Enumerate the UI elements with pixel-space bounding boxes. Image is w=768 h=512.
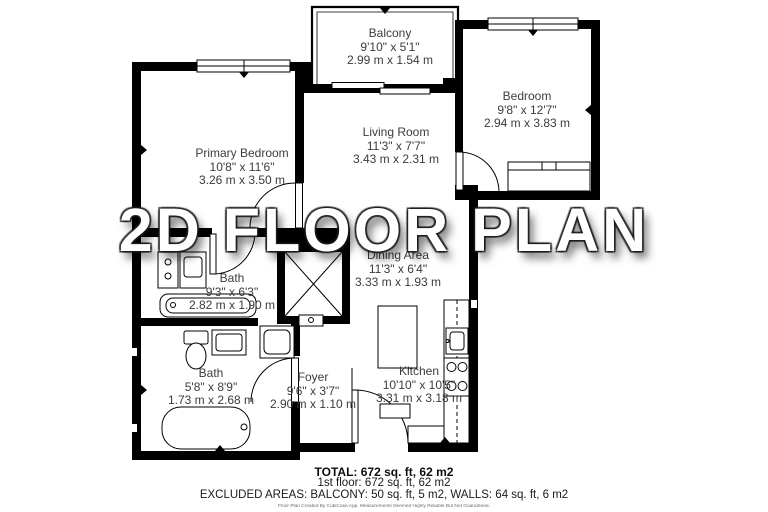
room-dim-metric: 3.33 m x 1.93 m bbox=[355, 276, 441, 290]
room-dim-imperial: 9'10" x 5'1" bbox=[347, 41, 433, 55]
summary-disclaimer: Floor Plan Created By CubiCasa App. Meas… bbox=[77, 504, 691, 510]
room-label-balcony: Balcony 9'10" x 5'1" 2.99 m x 1.54 m bbox=[347, 27, 433, 68]
room-name: Foyer bbox=[270, 371, 356, 385]
room-label-bath-upper: Bath 9'3" x 6'3" 2.82 m x 1.90 m bbox=[189, 272, 275, 313]
room-label-primary-bedroom: Primary Bedroom 10'8" x 11'6" 3.26 m x 3… bbox=[195, 147, 288, 188]
room-dim-imperial: 11'3" x 7'7" bbox=[353, 140, 439, 154]
room-name: Bath bbox=[189, 272, 275, 286]
washer bbox=[260, 326, 294, 358]
room-name: Bedroom bbox=[484, 90, 570, 104]
room-dim-metric: 2.99 m x 1.54 m bbox=[347, 54, 433, 68]
laundry-closet bbox=[285, 252, 342, 326]
room-dim-metric: 3.43 m x 2.31 m bbox=[353, 153, 439, 167]
room-dim-metric: 2.94 m x 3.83 m bbox=[484, 117, 570, 131]
room-label-bedroom: Bedroom 9'8" x 12'7" 2.94 m x 3.83 m bbox=[484, 90, 570, 131]
room-name: Living Room bbox=[353, 126, 439, 140]
room-name: Balcony bbox=[347, 27, 433, 41]
summary-excluded: EXCLUDED AREAS: BALCONY: 50 sq. ft, 5 m2… bbox=[0, 490, 768, 502]
door-arc bbox=[250, 183, 295, 228]
room-name: Kitchen bbox=[376, 365, 462, 379]
room-dim-imperial: 11'3" x 6'4" bbox=[355, 263, 441, 277]
room-name: Primary Bedroom bbox=[195, 147, 288, 161]
primary-bedroom-door bbox=[296, 183, 303, 228]
kitchen-island bbox=[378, 306, 417, 368]
room-name: Bath bbox=[168, 367, 254, 381]
room-dim-imperial: 9'3" x 6'3" bbox=[189, 286, 275, 300]
bedroom-wardrobe bbox=[508, 162, 590, 191]
room-dim-metric: 1.73 m x 2.68 m bbox=[168, 394, 254, 408]
room-name: Dining Area bbox=[355, 249, 441, 263]
bathtub bbox=[162, 407, 250, 449]
room-dim-imperial: 9'8" x 12'7" bbox=[484, 104, 570, 118]
room-dim-imperial: 10'8" x 11'6" bbox=[195, 161, 288, 175]
bath-lower-vanity bbox=[212, 330, 246, 355]
bedroom-door bbox=[456, 152, 463, 190]
room-dim-imperial: 10'10" x 10'5" bbox=[376, 379, 462, 393]
room-dim-metric: 2.82 m x 1.90 m bbox=[189, 299, 275, 313]
floor-plan-page: Balcony 9'10" x 5'1" 2.99 m x 1.54 m Bed… bbox=[0, 0, 768, 512]
room-dim-imperial: 5'8" x 8'9" bbox=[168, 381, 254, 395]
room-dim-metric: 3.31 m x 3.18 m bbox=[376, 392, 462, 406]
toilet bbox=[184, 331, 208, 369]
room-label-dining-area: Dining Area 11'3" x 6'4" 3.33 m x 1.93 m bbox=[355, 249, 441, 290]
room-dim-imperial: 9'6" x 3'7" bbox=[270, 385, 356, 399]
room-label-kitchen: Kitchen 10'10" x 10'5" 3.31 m x 3.18 m bbox=[376, 365, 462, 406]
room-label-foyer: Foyer 9'6" x 3'7" 2.90 m x 1.10 m bbox=[270, 371, 356, 412]
room-dim-metric: 3.26 m x 3.50 m bbox=[195, 174, 288, 188]
room-dim-metric: 2.90 m x 1.10 m bbox=[270, 398, 356, 412]
kitchen-sink bbox=[446, 328, 468, 354]
summary-block: TOTAL: 672 sq. ft, 62 m2 1st floor: 672 … bbox=[0, 466, 768, 511]
door-arc bbox=[213, 232, 255, 274]
summary-floor: 1st floor: 672 sq. ft, 62 m2 bbox=[0, 478, 768, 490]
bath-upper-door bbox=[210, 234, 216, 274]
room-label-bath-lower: Bath 5'8" x 8'9" 1.73 m x 2.68 m bbox=[168, 367, 254, 408]
room-label-living-room: Living Room 11'3" x 7'7" 3.43 m x 2.31 m bbox=[353, 126, 439, 167]
